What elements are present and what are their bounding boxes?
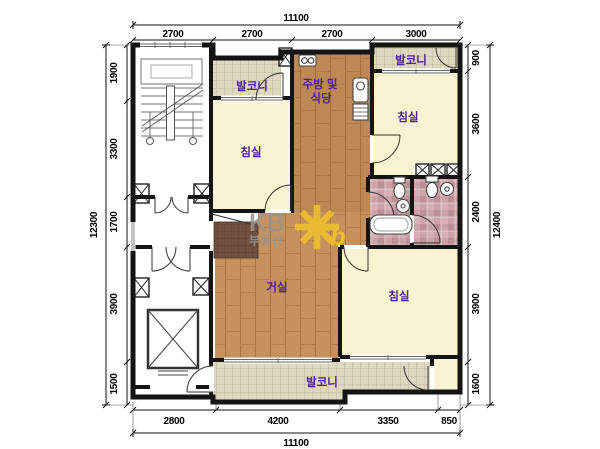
floor-plan: 발코니 발코니 발코니 침실 침실 침실 거실 주방 및 식당 11100 27…	[0, 0, 600, 449]
dim-top-1: 2700	[162, 29, 184, 40]
corridor-doors	[152, 247, 190, 271]
dim-right-seg-line	[465, 42, 471, 408]
dim-left-2: 3300	[109, 138, 120, 160]
living-room-window	[224, 358, 332, 364]
bedroom-2-window	[382, 69, 450, 75]
dim-right-5: 1600	[471, 373, 482, 395]
bedroom-1-label: 침실	[240, 145, 261, 159]
kb-sub-text: 부동산	[249, 233, 284, 248]
lobby-balcony-opening	[209, 366, 214, 392]
kitchen-floor-shade	[294, 52, 370, 212]
toilet-2	[426, 176, 438, 198]
dim-bottom-total-line	[130, 429, 463, 437]
dim-bottom-seg-line	[130, 407, 463, 413]
staircase	[141, 59, 203, 145]
dim-right-3: 2400	[471, 201, 482, 223]
dim-left-5: 1500	[109, 373, 120, 395]
dim-bottom-4: 850	[441, 416, 458, 427]
kitchen-label-line1: 주방 및	[303, 77, 338, 91]
living-room-label: 거실	[266, 280, 287, 294]
washbasin-2	[441, 183, 454, 196]
stair-window	[140, 42, 202, 49]
dim-left-total: 12300	[89, 211, 100, 238]
dim-right-1: 900	[471, 49, 482, 66]
floor-plan-page: 발코니 발코니 발코니 침실 침실 침실 거실 주방 및 식당 11100 27…	[0, 0, 600, 449]
balcony-bottom-label: 발코니	[306, 375, 338, 389]
balcony-top-left-label: 발코니	[236, 79, 268, 93]
bedroom-1-window	[221, 96, 283, 102]
corner-room-floor	[434, 359, 458, 390]
stair-post-left	[147, 138, 154, 145]
bedroom-3-window	[350, 355, 426, 361]
balcony-top-right-label: 발코니	[395, 53, 427, 67]
dim-left-4: 3900	[109, 293, 120, 315]
washbasin-1	[397, 200, 410, 213]
dim-right-2: 3600	[471, 113, 482, 135]
corridor-side-opening	[131, 222, 136, 251]
elevator-door	[158, 371, 188, 375]
bedroom-3-label: 침실	[388, 289, 409, 303]
dim-top-total: 11100	[283, 13, 309, 24]
dim-bottom-1: 2800	[163, 416, 185, 427]
dim-bottom-3: 3350	[377, 416, 399, 427]
dim-left-3: 1700	[109, 211, 120, 233]
stair-lobby-doors	[155, 197, 188, 213]
dim-bottom-total: 11100	[283, 438, 309, 449]
kb-star-letter: b	[330, 223, 345, 251]
elevator	[148, 310, 198, 375]
dim-left-seg-line	[124, 42, 130, 408]
dim-bottom-2: 4200	[267, 416, 289, 427]
dim-top-2: 2700	[241, 29, 263, 40]
bedroom-2-floor	[374, 73, 458, 175]
toilet-1	[394, 177, 405, 199]
kitchen-label-line2: 식당	[310, 91, 332, 105]
dim-right-total: 12400	[492, 211, 503, 238]
stair-post-right	[190, 138, 197, 145]
dim-top-4: 3000	[405, 29, 427, 40]
bathtub	[370, 215, 412, 234]
kb-brand-text: KB	[249, 209, 285, 237]
dim-right-4: 3900	[471, 293, 482, 315]
kitchen-range-icon	[299, 55, 316, 66]
dim-left-1: 1900	[109, 62, 120, 84]
stair-landing	[141, 59, 202, 84]
stair-stringer	[167, 86, 175, 140]
bedroom-2-label: 침실	[397, 110, 418, 124]
kitchen-sink	[353, 78, 368, 120]
dim-top-3: 2700	[321, 29, 343, 40]
